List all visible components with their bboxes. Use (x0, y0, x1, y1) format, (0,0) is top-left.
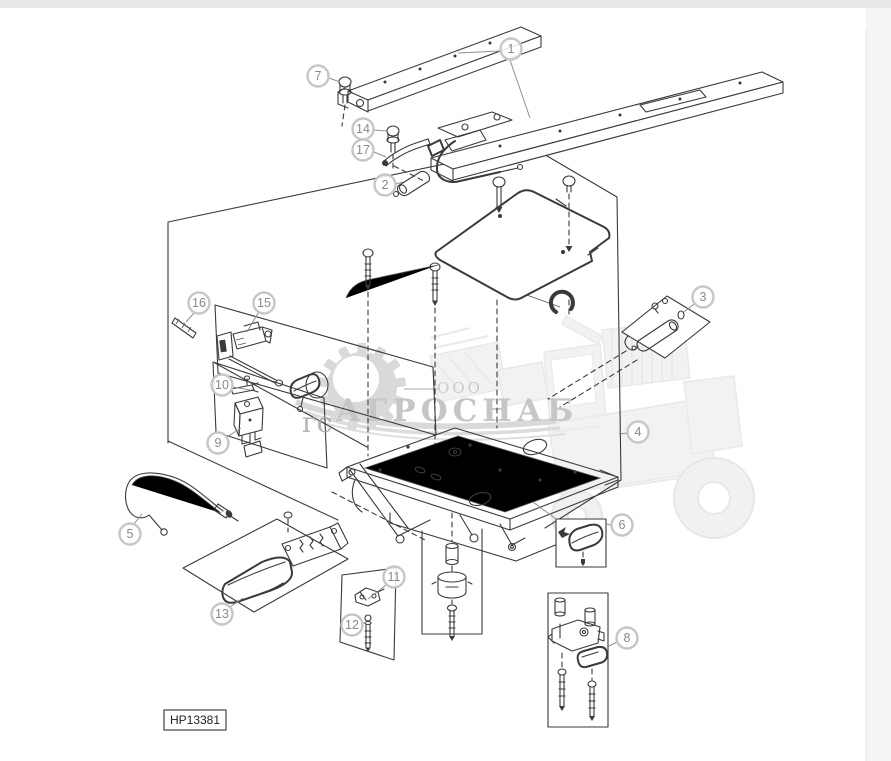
callout-leader (134, 514, 142, 524)
callout-number: 8 (624, 631, 631, 645)
callout-number: 15 (257, 296, 271, 310)
callout-3: 3 (684, 287, 714, 313)
callout-leader (609, 642, 617, 646)
callout-number: 5 (127, 527, 134, 541)
watermark-fragment-text: гс (302, 406, 332, 439)
drawing-number-label: HP13381 (164, 710, 226, 730)
callout-number: 12 (345, 618, 359, 632)
latch-assembly-15 (217, 322, 272, 360)
callout-leader (374, 152, 386, 157)
callout-6: 6 (606, 515, 633, 536)
latch-kit-box-8 (548, 593, 608, 727)
callout-number: 10 (215, 378, 229, 392)
right-strip (866, 8, 891, 761)
callout-7: 7 (308, 66, 341, 87)
callout-leader (606, 524, 611, 525)
callout-17: 17 (353, 140, 387, 161)
callout-14: 14 (353, 119, 389, 140)
callout-leader (329, 78, 340, 82)
cover-plate (436, 190, 610, 299)
callout-5: 5 (120, 514, 143, 545)
top-strip (0, 0, 891, 8)
callout-number: 6 (619, 518, 626, 532)
roll-pin-16 (172, 318, 196, 338)
svg-text:HP13381: HP13381 (170, 713, 220, 727)
retaining-clip (551, 292, 573, 312)
callout-15: 15 (247, 293, 275, 333)
callout-9: 9 (208, 428, 242, 454)
callout-number: 13 (215, 607, 229, 621)
callout-number: 14 (356, 122, 370, 136)
callout-16: 16 (186, 293, 210, 323)
watermark-brand-text: АГРОСНАБ (336, 393, 579, 429)
callout-number: 9 (215, 436, 222, 450)
seat-rail-right (431, 72, 783, 181)
callout-number: 11 (388, 570, 401, 584)
parts-catalog-page: ООО АГРОСНАБ (0, 0, 891, 761)
callout-leader (374, 130, 388, 131)
handle-box-13 (183, 512, 348, 612)
callout-number: 4 (635, 425, 642, 439)
rail-screw-7 (339, 77, 351, 126)
bushing-stack (422, 513, 482, 641)
callout-number: 1 (508, 42, 515, 56)
callout-number: 7 (315, 69, 322, 83)
callout-leader (510, 60, 530, 118)
switch-block-9 (234, 397, 263, 457)
callout-number: 3 (700, 290, 707, 304)
callout-number: 17 (356, 143, 370, 157)
cable-5 (126, 473, 238, 535)
callout-number: 2 (382, 178, 389, 192)
callout-8: 8 (609, 628, 638, 649)
callout-leader (186, 313, 194, 322)
parts-diagram-svg: ООО АГРОСНАБ (0, 0, 891, 761)
callout-number: 16 (192, 296, 206, 310)
